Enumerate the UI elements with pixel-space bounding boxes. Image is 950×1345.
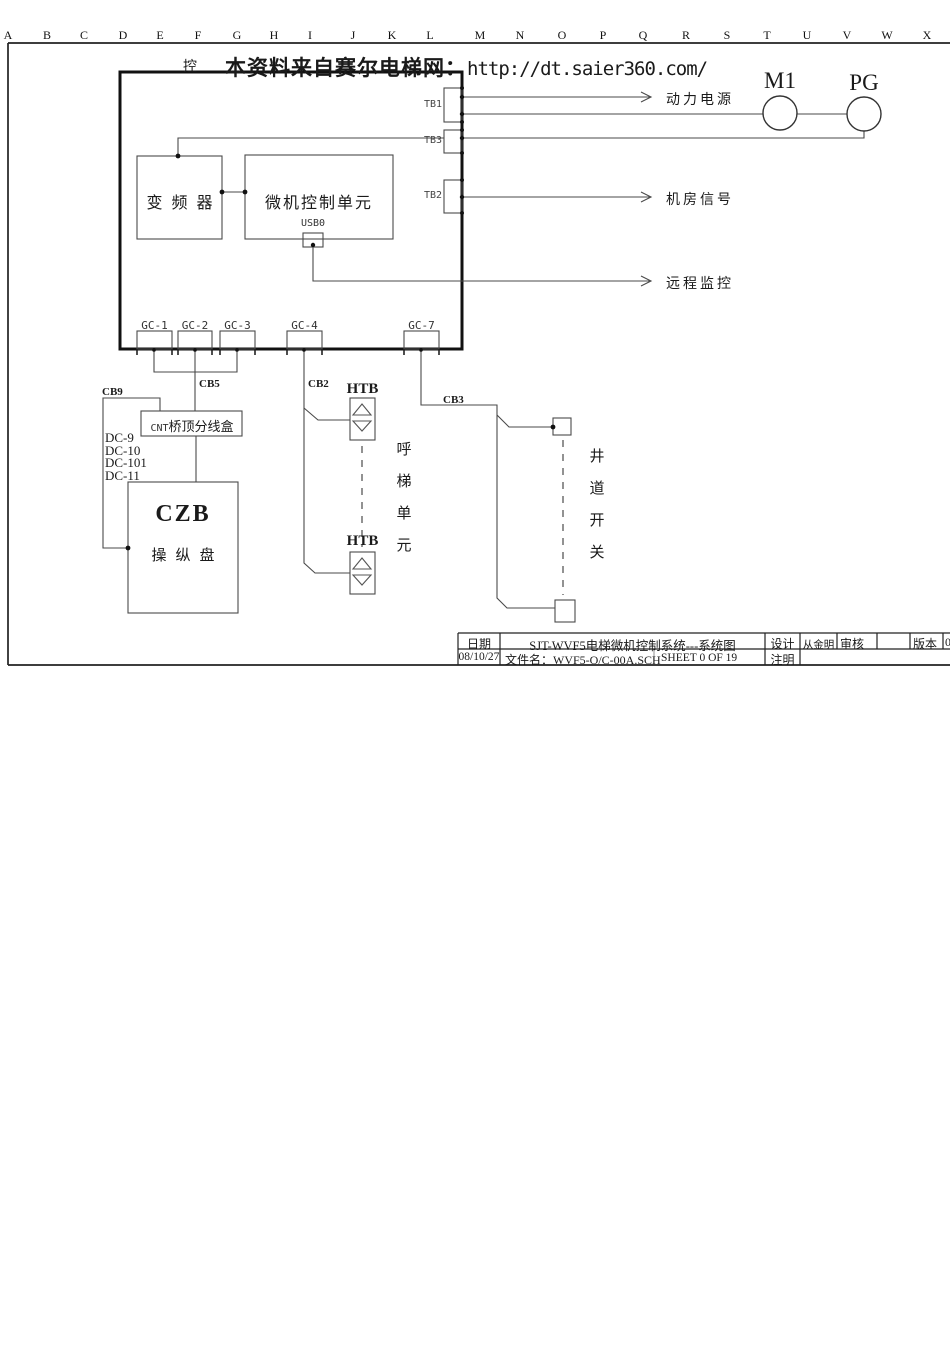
up-arrow-icon [353, 558, 371, 569]
watermark-url: http://dt.saier360.com/ [467, 58, 707, 80]
pg-encoder-circle [847, 97, 881, 131]
shaft-switch-top-box [553, 418, 571, 435]
wire-tb3-pg [462, 131, 864, 138]
down-arrow-icon [353, 575, 371, 585]
mcu-label: 微机控制单元 [245, 189, 393, 213]
up-arrow-icon [353, 404, 371, 415]
inverter-label: 变频器 [137, 189, 222, 213]
down-arrow-icon [353, 421, 371, 431]
htb-bottom-label: HTB [340, 533, 385, 550]
watermark-text: 本资料来自赛尔电梯网： [225, 56, 467, 80]
schematic-sheet: ABCDEFGHIJKLMNOPQRSTUVWX [0, 0, 950, 1345]
dc-cable-item: DC-11 [105, 470, 147, 483]
cb9-label: CB9 [102, 386, 123, 398]
cb5-label: CB5 [199, 378, 220, 390]
tb3-box [444, 130, 462, 153]
gc1-box [137, 331, 172, 349]
titleblock-filename: 文件名：WVF5-O/C-00A.SCH [505, 651, 661, 668]
tb2-box [444, 180, 462, 213]
titleblock-review-label: 审核 [840, 635, 880, 652]
gc3-box [220, 331, 255, 349]
cabinet-partial-label: 控 [183, 56, 197, 76]
tb1-label: TB1 [420, 99, 442, 110]
power-supply-label: 动力电源 [666, 89, 734, 109]
usb0-label: USB0 [298, 218, 328, 229]
tb3-label: TB3 [420, 135, 442, 146]
titleblock-designer: 从金明 [800, 637, 837, 652]
titleblock-note-label: 注明 [765, 651, 800, 668]
schematic-lines [0, 0, 950, 680]
titleblock-version-label: 版本 [913, 635, 946, 652]
cnt-box-label: CNT桥顶分线盒 [143, 416, 241, 436]
gc4-label: GC-4 [287, 319, 322, 332]
wire-gc7-cb3 [421, 349, 555, 608]
titleblock-design-label: 设计 [765, 635, 800, 652]
wire-cb3-switch-top [497, 415, 553, 427]
titleblock-sheet: SHEET 0 OF 19 [661, 652, 737, 664]
czb-name-label: 操纵盘 [128, 544, 238, 565]
remote-monitor-label: 远程监控 [666, 273, 734, 293]
cb3-label: CB3 [443, 394, 464, 406]
shaft-switch-label: 井道开关 [588, 441, 606, 569]
wire-inverter-tb3 [178, 138, 444, 156]
gc2-label: GC-2 [178, 319, 212, 332]
tb1-box [444, 88, 462, 122]
gc2-box [178, 331, 212, 349]
sheet-border [8, 43, 950, 665]
tb2-label: TB2 [420, 190, 442, 201]
gc7-box [404, 331, 439, 349]
htb-top-label: HTB [340, 381, 385, 398]
titleblock-date-label: 日期 [458, 635, 500, 652]
cnt-prefix: CNT [150, 423, 168, 434]
m1-motor-circle [763, 96, 797, 130]
wire-cb2-htb-top [304, 408, 350, 420]
cnt-name: 桥顶分线盒 [169, 419, 234, 434]
pg-label: PG [845, 70, 883, 96]
m1-label: M1 [762, 68, 798, 94]
gc1-label: GC-1 [137, 319, 172, 332]
cb2-label: CB2 [308, 378, 329, 390]
wire-usb0-remote [313, 247, 650, 281]
titleblock-version-partial: 0 [945, 635, 950, 650]
gc7-label: GC-7 [404, 319, 439, 332]
watermark-line: 本资料来自赛尔电梯网：http://dt.saier360.com/ [225, 52, 707, 82]
gc3-label: GC-3 [220, 319, 255, 332]
titleblock-date-value: 08/10/27 [458, 651, 500, 663]
gc4-box [287, 331, 322, 349]
czb-code-label: CZB [128, 501, 238, 528]
shaft-switch-bottom-box [555, 600, 575, 622]
hall-call-unit-label: 呼梯单元 [395, 434, 413, 562]
dc-cable-list: DC-9 DC-10 DC-101 DC-11 [105, 432, 147, 482]
machine-room-signal-label: 机房信号 [666, 189, 734, 209]
